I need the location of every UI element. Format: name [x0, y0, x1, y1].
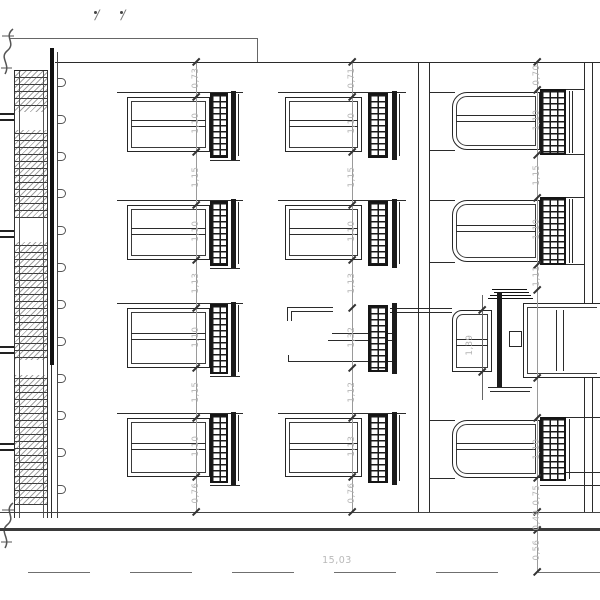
balcony-railing [368, 93, 388, 158]
entrance-post [497, 292, 502, 388]
balcony-railing [210, 304, 228, 374]
dim-label: 0,71 [347, 61, 357, 95]
dim-label: 1,10 [347, 106, 357, 140]
shaft-inner-line [43, 70, 44, 518]
shaft-top-line [14, 70, 48, 71]
balcony-return-line [238, 305, 239, 372]
string-course [429, 262, 455, 263]
shaft-inner-line [19, 70, 20, 518]
balcony-railing [540, 89, 566, 155]
balcony-slab-edge [231, 199, 236, 268]
dim-label: 1,13 [191, 266, 201, 300]
dim-label: 1,10 [191, 429, 201, 463]
window-unit [452, 92, 540, 150]
dim-label: 1,12 [347, 375, 357, 409]
plinth-line [0, 512, 600, 513]
level-marker-dot [94, 11, 97, 14]
door-sign [509, 331, 522, 347]
downpipe-clamp [58, 78, 66, 87]
string-course [429, 200, 455, 201]
balcony-slab-edge [392, 91, 397, 160]
ledge-line [566, 197, 584, 198]
railing-foot-line [210, 268, 240, 269]
dim-label: 1,15 [191, 160, 201, 194]
dim-label: 1,13 [347, 266, 357, 300]
corner-thick-line [50, 48, 54, 365]
canopy-line [492, 289, 527, 290]
dim-label: 1,32 [347, 320, 357, 354]
window-unit [452, 420, 540, 478]
elevation-drawing: ∕ ∕ [0, 0, 600, 600]
railing-foot-line [210, 485, 240, 486]
balcony-return-line [238, 202, 239, 264]
dim-label: 1,10 [191, 106, 201, 140]
string-course [429, 92, 455, 93]
upper-level-line [10, 38, 257, 39]
ledge-line [566, 89, 584, 90]
facade-right-edge [584, 62, 585, 512]
downpipe-clamp [58, 448, 66, 457]
balcony-return-line [572, 91, 573, 153]
ledge-line [566, 264, 584, 265]
window-unit [452, 200, 540, 262]
balcony-return-line [238, 415, 239, 481]
dim-label: 0,76 [191, 476, 201, 510]
open-window-fragment [288, 355, 289, 361]
balcony-return-line [569, 419, 570, 479]
dim-label: 0,49 [532, 503, 542, 537]
balcony-slab-edge [392, 303, 397, 374]
dim-label: 1,10 [191, 320, 201, 354]
ledge-line [566, 417, 600, 418]
downpipe-clamp [58, 411, 66, 420]
ledge-line [390, 312, 452, 313]
balcony-railing [368, 414, 388, 483]
string-course [429, 478, 455, 479]
canopy-line [488, 298, 533, 299]
dim-label: 1,39 [465, 328, 475, 362]
level-marker-dot [120, 11, 123, 14]
railing-foot-line [210, 160, 240, 161]
downpipe-clamp [58, 189, 66, 198]
dim-label: 0,56 [532, 533, 542, 567]
ledge-line [566, 472, 600, 473]
ledge-line [390, 308, 452, 309]
dim-label: 1,10 [532, 432, 542, 466]
balcony-slab-edge [231, 412, 236, 485]
roof-line [55, 62, 600, 63]
open-window-fragment [287, 307, 333, 308]
corner-thin-line [51, 365, 52, 518]
string-course [429, 420, 455, 421]
balcony-slab-edge [231, 91, 236, 160]
railing-foot-line [210, 376, 240, 377]
balcony-return-line [572, 199, 573, 263]
entrance-portal [523, 303, 600, 378]
balcony-return-line [569, 91, 570, 153]
upper-level-drop [257, 38, 258, 62]
ledge-line [540, 485, 600, 486]
balcony-return-line [399, 202, 400, 264]
dim-label: 1,10 [532, 212, 542, 246]
balcony-slab-edge [231, 302, 236, 376]
balcony-return-line [399, 94, 400, 156]
balcony-railing [540, 197, 566, 265]
balcony-railing [540, 417, 566, 481]
dim-label: 0,70 [532, 58, 542, 92]
open-window-fragment [287, 307, 288, 321]
open-window-fragment [291, 311, 333, 312]
slab-stub [0, 113, 14, 121]
dashed-ground-line [28, 572, 600, 573]
dim-label: 1,11 [532, 259, 542, 293]
slab-stub [0, 346, 14, 354]
dim-label: 1,13 [347, 429, 357, 463]
door-dim-line [482, 295, 483, 400]
downpipe-clamp [58, 152, 66, 161]
balcony-return-line [399, 415, 400, 481]
downpipe-clamp [58, 374, 66, 383]
downpipe-clamp [58, 115, 66, 124]
downpipe-clamp [58, 485, 66, 494]
balcony-railing [368, 305, 388, 372]
dim-label: 1,10 [191, 214, 201, 248]
slab-stub [0, 230, 14, 238]
dim-label: 1,10 [532, 103, 542, 137]
downpipe-clamp [58, 337, 66, 346]
balcony-slab-edge [392, 199, 397, 268]
facade-division-line [429, 62, 430, 512]
entrance-step [488, 387, 532, 388]
entrance-step [490, 391, 530, 392]
facade-right-edge [592, 62, 593, 512]
portal-mullion [563, 310, 564, 371]
slab-stub [0, 443, 14, 451]
dim-label: 1,10 [347, 214, 357, 248]
dim-label: 1,15 [532, 158, 542, 192]
balcony-railing [210, 201, 228, 266]
downpipe-clamp [58, 226, 66, 235]
portal-mullion [556, 310, 557, 371]
dim-label: 1,15 [347, 160, 357, 194]
dim-label: 0,76 [347, 476, 357, 510]
balcony-slab-edge [392, 412, 397, 485]
facade-division-line [418, 62, 419, 512]
balcony-railing [210, 93, 228, 158]
downpipe-clamp [58, 263, 66, 272]
balcony-railing [210, 414, 228, 483]
dim-label: 0,73 [191, 61, 201, 95]
downpipe-clamp [58, 300, 66, 309]
balcony-return-line [569, 199, 570, 263]
dim-label: 1,15 [191, 375, 201, 409]
ledge-line [566, 154, 584, 155]
balcony-return-line [238, 94, 239, 156]
string-course [429, 150, 455, 151]
overall-width-label: 15,03 [307, 555, 367, 566]
ground-line [0, 528, 600, 531]
balcony-railing [368, 201, 388, 266]
open-window-fragment [291, 311, 292, 321]
